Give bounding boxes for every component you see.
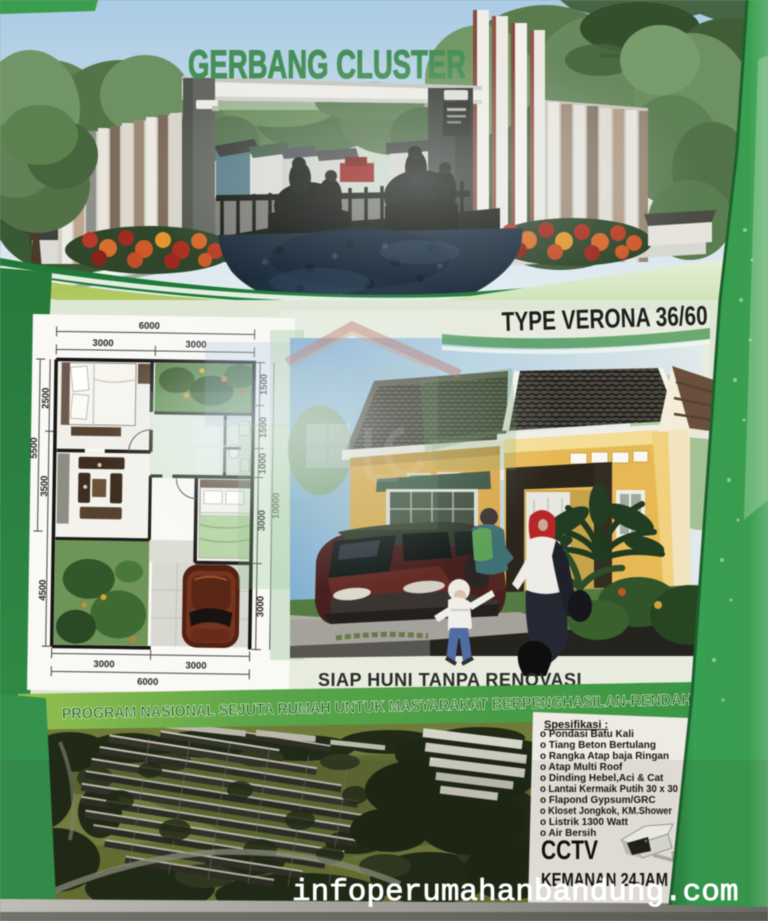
svg-text:3000: 3000	[185, 660, 206, 671]
svg-text:o Pondasi Batu Kali: o Pondasi Batu Kali	[540, 729, 634, 740]
svg-text:3000: 3000	[255, 596, 266, 617]
svg-text:3000: 3000	[93, 659, 114, 670]
svg-text:2500: 2500	[40, 388, 51, 409]
svg-text:3000: 3000	[92, 338, 113, 349]
svg-text:4500: 4500	[37, 580, 48, 601]
svg-text:5500: 5500	[29, 437, 40, 458]
svg-text:o Tiang Beton Bertulang: o Tiang Beton Bertulang	[540, 740, 656, 751]
svg-text:6000: 6000	[137, 677, 158, 688]
svg-text:infoperumahanbandung.com: infoperumahanbandung.com	[292, 875, 738, 910]
svg-text:3500: 3500	[39, 476, 50, 497]
